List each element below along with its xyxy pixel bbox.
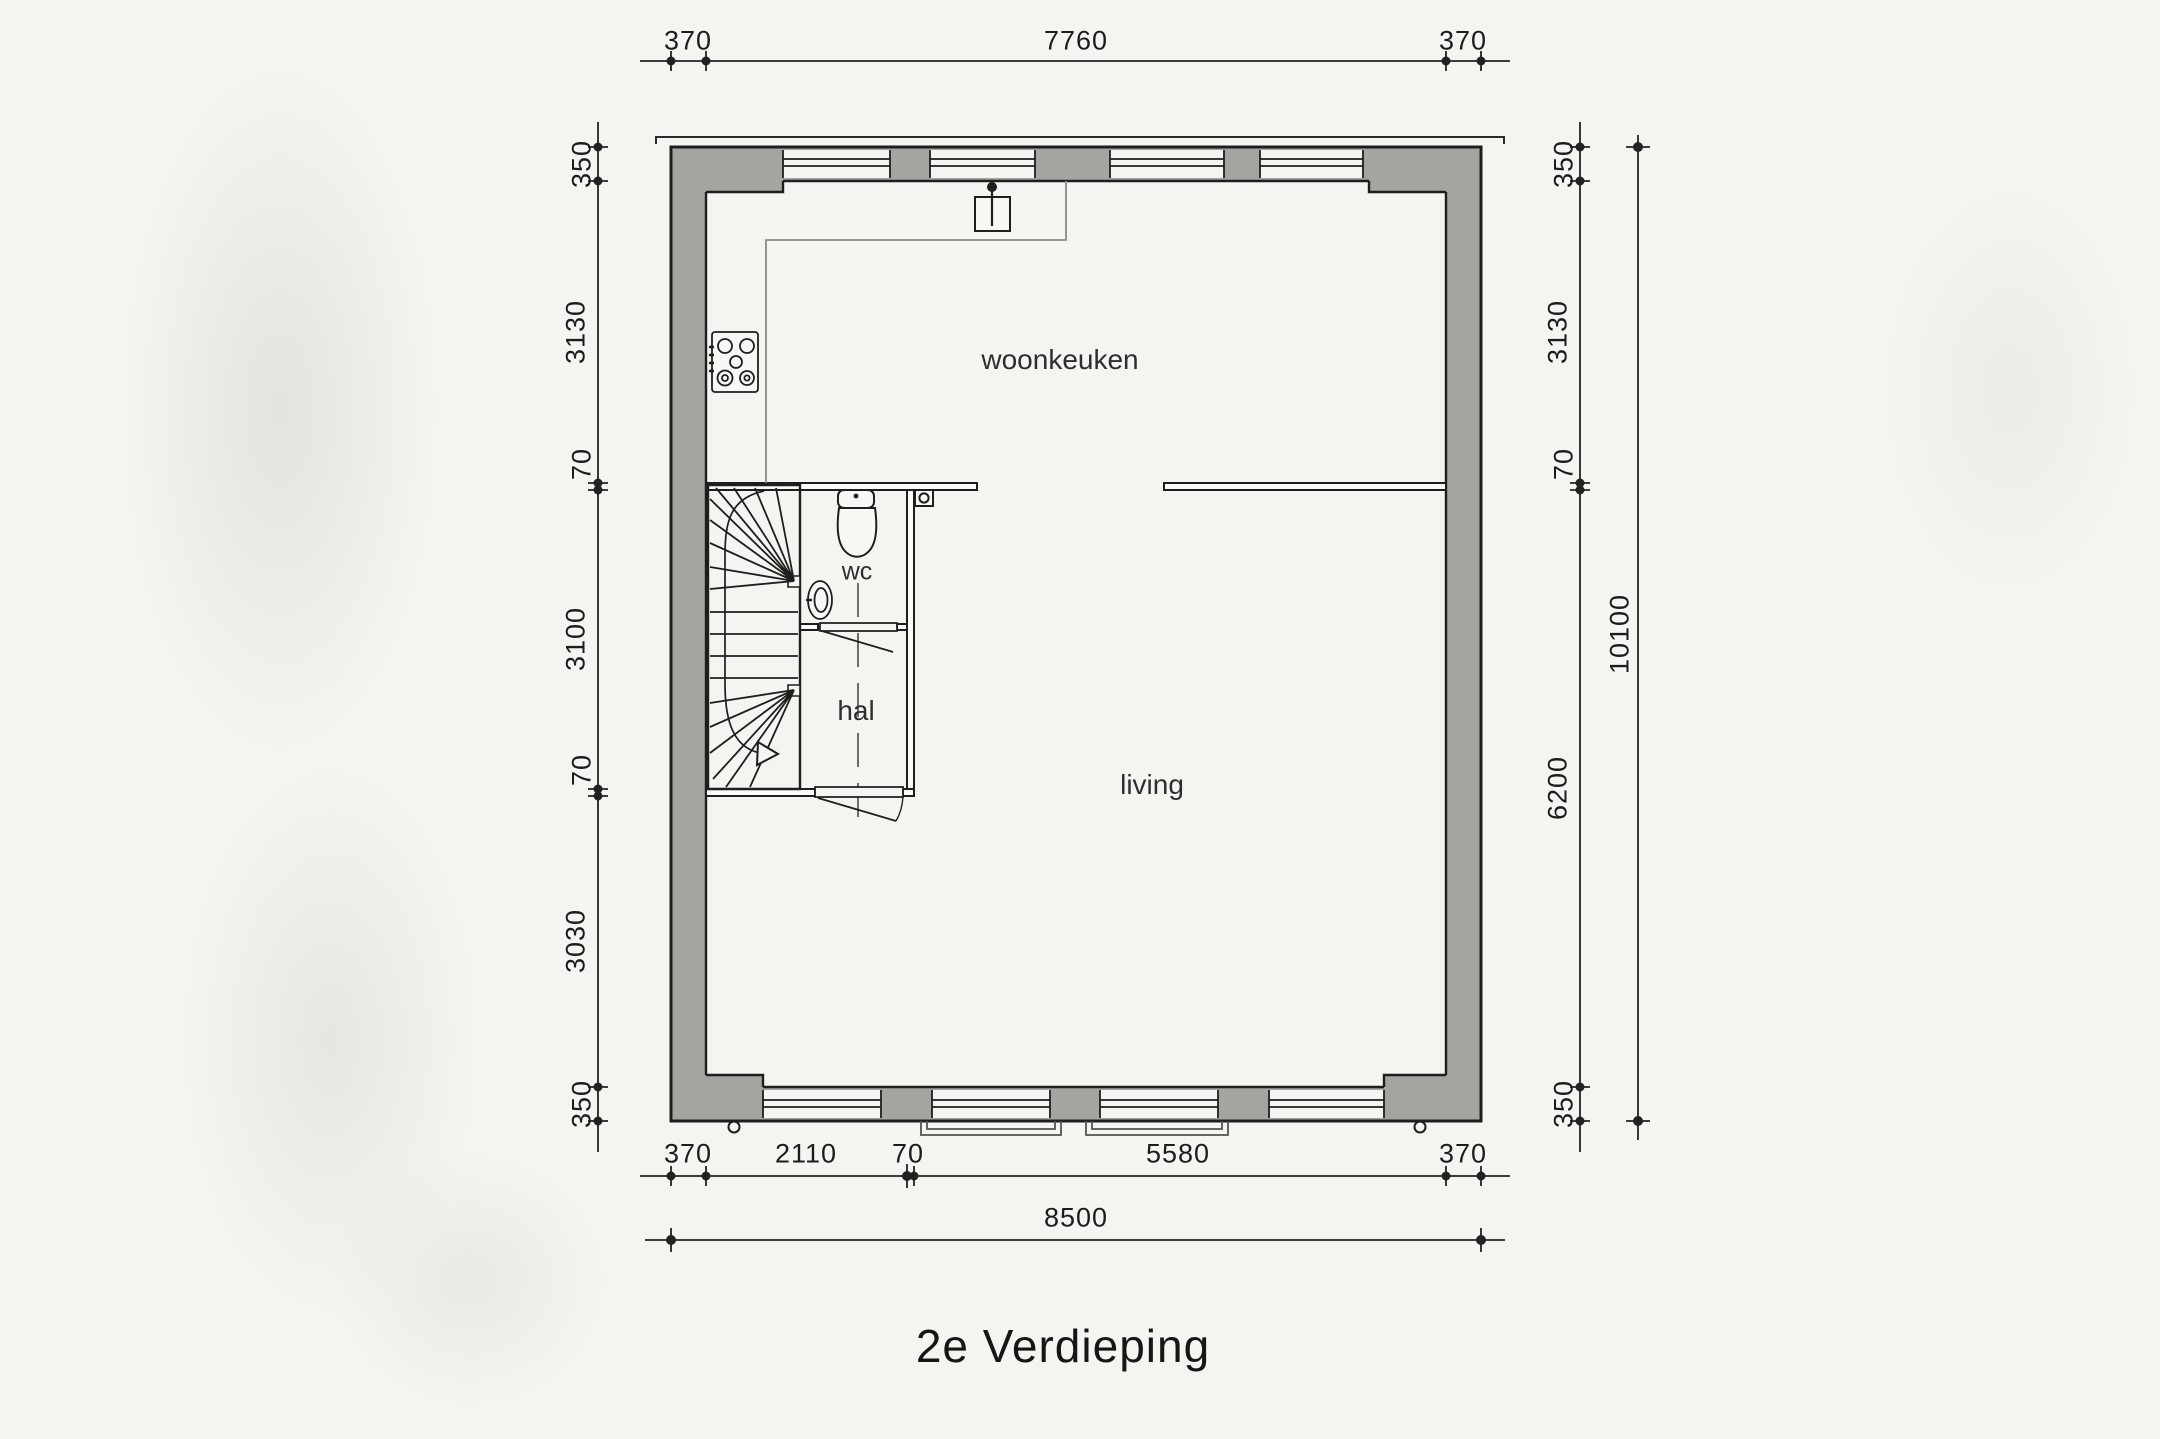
dim-bottom-total: 8500 [1044,1203,1108,1234]
dim-right-total: 10100 [1605,594,1636,674]
dim-left-3: 3100 [561,607,592,671]
dim-top-right: 370 [1439,26,1487,57]
dim-line-right [1570,122,1590,1152]
balcony-railing-left [921,1121,1061,1135]
dim-right-2: 70 [1549,448,1580,480]
dim-left-2: 70 [567,448,598,480]
floor-plan-page: 370 7760 370 350 3130 70 3100 70 3030 35… [0,0,2160,1439]
room-label-kitchen: woonkeuken [981,344,1138,376]
hall-door [815,787,903,821]
dim-top-left: 370 [664,26,712,57]
downpipe-icon [729,1122,740,1133]
dim-top-mid: 7760 [1044,26,1108,57]
dim-left-4: 70 [567,754,598,786]
gutter-line [656,137,1504,144]
stove-icon [709,332,758,392]
dim-left-0: 350 [567,140,598,188]
dim-line-bottom [640,1164,1510,1188]
stair-walkline [725,491,764,753]
flue-icon [975,181,1010,231]
dim-bottom-2: 70 [892,1139,924,1170]
dim-left-5: 3030 [561,909,592,973]
downpipe-icon [1415,1122,1426,1133]
dim-bottom-3: 5580 [1146,1139,1210,1170]
room-label-wc: wc [842,558,873,587]
stair-up-arrow-icon [757,742,778,765]
sink-icon [806,581,832,619]
dim-left-1: 3130 [561,300,592,364]
staircase [708,485,800,789]
dim-right-4: 350 [1549,1080,1580,1128]
kitchen-counter-line [766,181,1066,483]
page-title: 2e Verdieping [916,1319,1210,1373]
dimension-lines [588,51,1650,1252]
room-label-living: living [1120,769,1184,801]
dim-left-6: 350 [567,1080,598,1128]
balcony-railing-right [1086,1121,1228,1135]
dim-bottom-4: 370 [1439,1139,1487,1170]
dim-right-3: 6200 [1543,756,1574,820]
room-label-hall: hal [837,695,874,727]
vent-point-icon [915,490,933,506]
interior-walls [706,483,1446,796]
dim-right-1: 3130 [1543,300,1574,364]
toilet-icon [838,490,877,557]
dim-bottom-1: 2110 [775,1139,837,1170]
dim-bottom-0: 370 [664,1139,712,1170]
dim-right-0: 350 [1549,140,1580,188]
